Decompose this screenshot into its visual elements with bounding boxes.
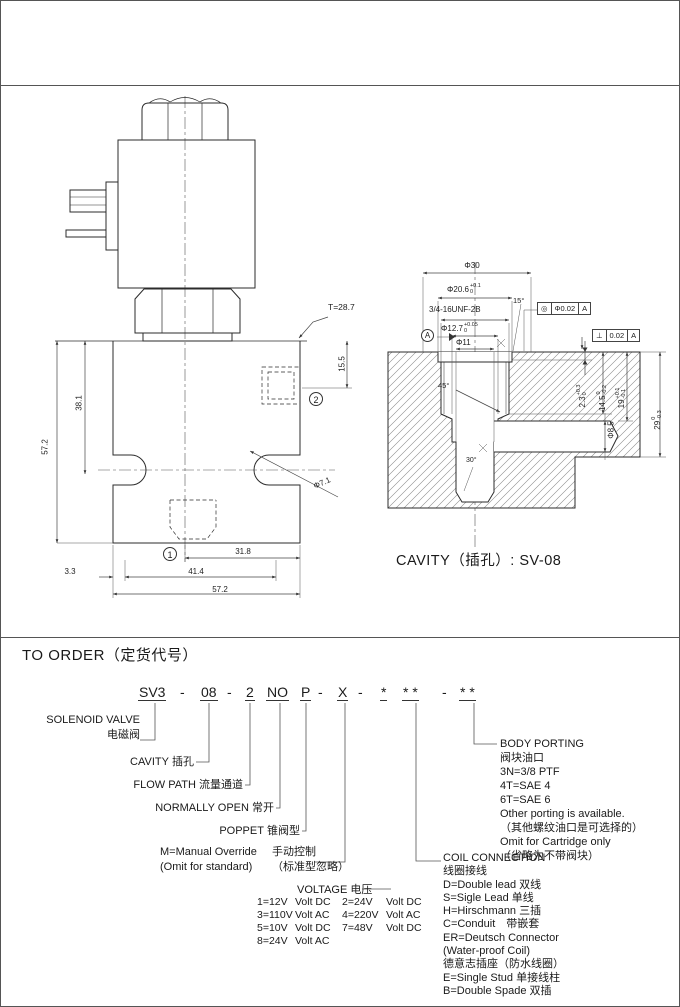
cavity-caption: CAVITY（插孔）: SV-08 [396,549,561,570]
thread-torque-note: T=28.7 [328,302,355,312]
concentricity-datum: A [578,303,590,314]
lower-nut [135,289,240,333]
port-1-balloon: 1 [163,547,177,561]
voltage-table: 1=12VVolt DC2=24VVolt DC 3=110VVolt AC4=… [257,896,436,948]
dim-d12-7-tolerance: +0.050 [464,322,478,334]
dim-19: 19 +0.1-0.1 [615,388,627,409]
perpendicularity-icon: ⊥ [593,330,606,341]
side-port-channel [494,421,618,452]
dim-29: 29 0-0.3 [651,410,663,429]
coil-connection-block: COIL CONNECTION 线圈接线 D=Double lead 双线 S=… [443,852,564,998]
dim-14-5: 14.5 0-0.2 [596,385,608,411]
catalog-page: { "valve": { "t_note": "T=28.7", "dim_he… [0,0,680,1007]
concentricity-value: Φ0.02 [551,303,579,314]
dim-2-3: 2.3 +0.30 [576,385,588,408]
code-segment-normally-open: NO [266,684,289,701]
angle-45: 45° [438,381,449,390]
field-solenoid-valve-zh: 电磁阀 [46,728,140,743]
dim-overall-width: 57.2 [212,585,228,594]
port-2-balloon: 2 [309,392,323,406]
code-segment-flowpath: 2 [245,684,255,701]
dim-d12-7-value: Φ12.7 [441,324,463,333]
dim-d20-6: Φ20.6 +0.10 [447,283,481,295]
dim-overall-height: 57.2 [41,439,50,455]
field-solenoid-valve: SOLENOID VALVE 电磁阀 [46,713,140,743]
valve-extension-lines [57,388,352,598]
datum-a-symbol: A [421,329,434,342]
angle-30: 30° [466,457,477,464]
code-dash: - [227,684,232,700]
field-solenoid-valve-en: SOLENOID VALVE [46,713,140,728]
hidden-ports [170,367,300,539]
voltage-title: VOLTAGE 电压 [297,881,372,897]
dim-thread-spec: 3/4-16UNF-2B [429,305,481,314]
dim-port2-depth: 15.5 [338,356,347,372]
body-porting-block: BODY PORTING 阀块油口 3N=3/8 PTF 4T=SAE 4 6T… [500,737,643,863]
counterbore [438,352,512,362]
code-segment-poppet: P [300,684,311,701]
dim-41-4: 41.4 [188,567,204,576]
field-normally-open: NORMALLY OPEN 常开 [155,801,274,816]
connector-base [106,182,118,250]
cavity-drawing [388,352,640,508]
dim-d20-6-value: Φ20.6 [447,285,469,294]
code-segment-coil-connection: * * [402,684,419,701]
field-cavity: CAVITY 插孔 [130,755,194,770]
field-poppet: POPPET 锥阀型 [219,824,300,839]
code-segment-voltage: * [380,684,387,701]
spade-pin [70,190,106,212]
dim-3-3: 3.3 [64,567,75,576]
manual-override-note-zh: 手动控制 （标准型忽略） [272,845,349,874]
valve-body-outline [113,341,300,543]
perpendicularity-datum: A [627,330,639,341]
field-flow-path: FLOW PATH 流量通道 [133,778,243,793]
washer [143,333,232,341]
angle-15: 15° [513,296,524,305]
order-section-title: TO ORDER（定货代号） [22,644,198,665]
dim-d11: Φ11 [456,338,471,347]
code-segment-body-porting: * * [459,684,476,701]
coil-body [118,140,255,288]
dim-height-38: 38.1 [75,395,84,411]
perpendicularity-value: 0.02 [606,330,628,341]
dim-d8-5: Φ8.5 [607,421,616,439]
code-segment-manual-override: X [337,684,348,701]
manual-override-note-en: M=Manual Override (Omit for standard) [160,845,257,874]
concentricity-tolerance-frame: ◎ Φ0.02 A [537,302,591,315]
code-dash: - [442,684,447,700]
section-rule [0,637,680,638]
concentricity-icon: ◎ [538,303,551,314]
dim-d30: Φ30 [464,261,479,270]
code-dash: - [318,684,323,700]
code-dash: - [358,684,363,700]
perpendicularity-tolerance-frame: ⊥ 0.02 A [592,329,640,342]
dim-d12-7: Φ12.7 +0.050 [441,322,478,334]
dim-31-8: 31.8 [235,547,251,556]
header-rule [0,85,680,86]
code-segment-model: SV3 [138,684,166,701]
thin-pin [66,230,106,237]
valve-dimension-lines [57,317,352,598]
code-segment-cavity: 08 [200,684,218,701]
code-dash: - [180,684,185,700]
dim-d20-6-tolerance: +0.10 [470,283,481,295]
